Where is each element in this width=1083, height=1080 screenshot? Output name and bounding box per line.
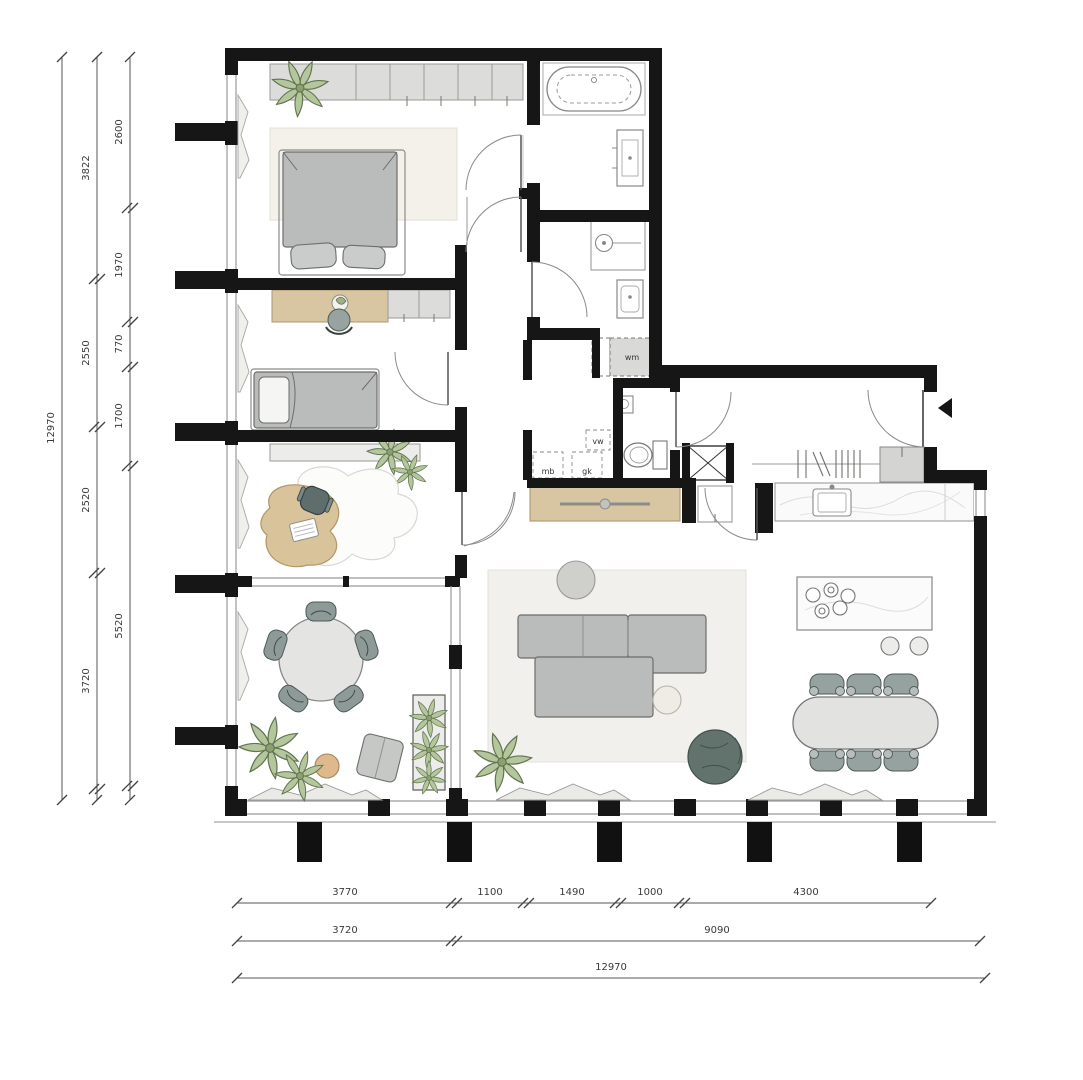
toilet-room (616, 396, 667, 469)
dark-plant (688, 730, 742, 784)
dim-bottom1-4: 4300 (793, 887, 818, 898)
single-bed (251, 369, 379, 430)
pillow (342, 245, 385, 269)
dining-chair (884, 674, 919, 696)
dim-left-middle-1: 2550 (81, 340, 92, 365)
pouf-square (356, 733, 405, 783)
dim-bottom1-0: 3770 (332, 887, 357, 898)
pillow (290, 242, 337, 269)
dimension-chain-left: 2600 1970 770 1700 5520 3822 2550 2520 3… (46, 52, 138, 805)
washbasin (617, 280, 643, 318)
interior-glass-wall-horizontal (237, 576, 460, 587)
living-room (461, 561, 746, 802)
faucet (830, 485, 835, 490)
reserved-appliance-zone: mb gk vw (533, 430, 610, 478)
hall-cabinet (698, 486, 732, 522)
chair (306, 602, 336, 621)
dining-chair (884, 750, 919, 772)
side-table (653, 686, 681, 714)
dim-left-inner-2: 770 (114, 334, 125, 353)
coat-rack (752, 450, 880, 478)
double-bed (279, 150, 405, 275)
door-toilet (676, 392, 731, 447)
bedroom-master (262, 50, 523, 275)
bar-stool (881, 637, 899, 655)
gk-label: gk (582, 467, 592, 476)
dim-left-inner-0: 2600 (114, 119, 125, 144)
pillow (259, 377, 289, 423)
facade-pilaster-stubs (175, 123, 227, 745)
dim-left-inner-4: 5520 (114, 613, 125, 638)
bathroom (543, 63, 645, 186)
wardrobe-kids (388, 290, 450, 322)
dim-bottom-total: 12970 (595, 962, 627, 973)
dining-chair (810, 674, 845, 696)
door-bedroom-kids (395, 352, 448, 405)
dining-chair (847, 750, 882, 772)
toilet (624, 441, 667, 469)
bathtub (543, 63, 645, 115)
dim-left-inner-1: 1970 (114, 252, 125, 277)
entrance-arrow-icon (938, 398, 952, 418)
winter-garden (234, 576, 462, 809)
kitchen-island (797, 577, 932, 630)
planter-box (405, 694, 453, 802)
dishwasher-label: vw (592, 437, 604, 446)
dining-table (793, 697, 938, 749)
utility-closet: wm (592, 338, 654, 376)
technical-shaft (688, 446, 728, 480)
bottom-facade-window-wall (225, 784, 987, 816)
dim-bottom1-2: 1490 (559, 887, 584, 898)
window-curtain-marks (238, 95, 249, 700)
dim-left-inner-3: 1700 (114, 403, 125, 428)
bar-stool (910, 637, 928, 655)
dimension-chain-bottom: 3770 1100 1490 1000 4300 3720 9090 12970 (232, 887, 990, 983)
washbasin (612, 130, 643, 186)
dining-area (793, 674, 938, 771)
right-wall-window (974, 490, 987, 516)
dim-bottom1-1: 1100 (477, 887, 502, 898)
dim-bottom2-1: 9090 (704, 925, 729, 936)
door-bathroom (466, 197, 521, 252)
floor-plan-drawing: wm mb gk vw (0, 0, 1083, 1080)
door-bedroom-master (466, 135, 521, 190)
washing-machine-label: wm (625, 353, 640, 362)
dim-bottom1-3: 1000 (637, 887, 662, 898)
dim-left-middle-0: 3822 (81, 155, 92, 180)
shower (591, 218, 645, 270)
dim-left-total: 12970 (46, 412, 57, 444)
terrace-edge-and-columns (214, 822, 996, 862)
bedroom-kids (251, 290, 450, 430)
radiator-curtain-marks (248, 784, 882, 800)
hall-sideboard (530, 487, 680, 521)
pouf-round (557, 561, 595, 599)
floor-plan-page: wm mb gk vw (0, 0, 1083, 1080)
shower-room (591, 218, 645, 318)
door-shower-room (532, 262, 587, 317)
door-entrance (868, 390, 952, 447)
interior-glass-wall-vertical (449, 586, 462, 800)
dining-chair (810, 750, 845, 772)
dim-left-middle-2: 2520 (81, 487, 92, 512)
kitchen-counter (775, 483, 974, 521)
study (261, 425, 434, 566)
mb-label: mb (542, 467, 555, 476)
tall-cabinet (880, 447, 924, 482)
door-study (462, 492, 515, 546)
dining-chair (847, 674, 882, 696)
dim-bottom2-0: 3720 (332, 925, 357, 936)
dim-left-middle-3: 3720 (81, 668, 92, 693)
